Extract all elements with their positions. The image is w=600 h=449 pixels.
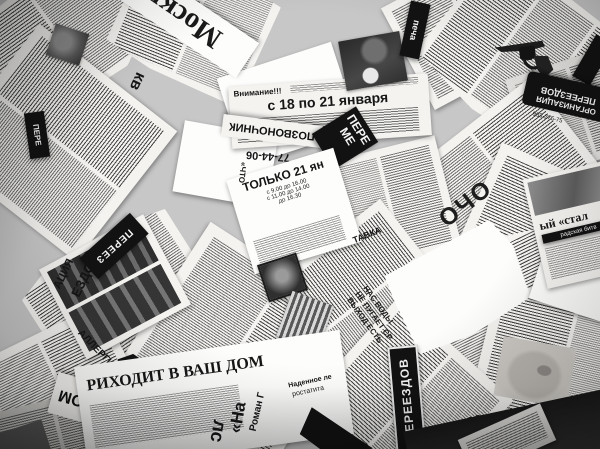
pere-left-label: ПЕРЕ xyxy=(31,124,43,147)
ls-fragment: лс xyxy=(204,418,230,444)
newspaper-collage-photo: Москва кв Внимание!!! с 18 по 21 января … xyxy=(0,0,600,449)
kv-fragment: кв xyxy=(125,69,149,93)
kettle-photo xyxy=(338,31,408,91)
pecha-label: печа xyxy=(408,19,422,41)
